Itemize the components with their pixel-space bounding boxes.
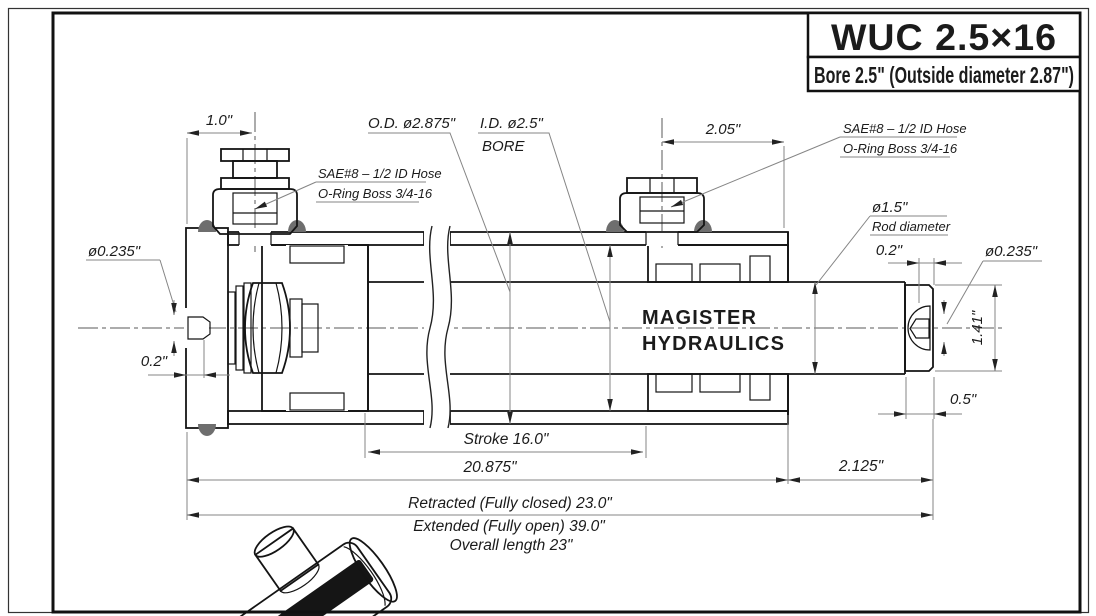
- dim-rod-extension: 2.125": [788, 419, 933, 520]
- dim-retracted: Retracted (Fully closed) 23.0": [187, 495, 933, 515]
- svg-text:ø0.235": ø0.235": [985, 243, 1038, 260]
- svg-text:SAE#8 – 1/2 ID Hose: SAE#8 – 1/2 ID Hose: [843, 121, 967, 136]
- drawing-page: MAGISTER HYDRAULICS 1.0" O.D. ø2.875" I.…: [0, 0, 1096, 616]
- svg-text:2.05": 2.05": [705, 121, 741, 138]
- svg-text:0.5": 0.5": [950, 391, 977, 408]
- svg-text:1.0": 1.0": [206, 112, 233, 129]
- dim-port-spacing: 2.05": [662, 121, 784, 228]
- dim-stroke: Stroke 16.0": [365, 413, 646, 458]
- bore-note: Bore 2.5" (Outside diameter 2.87"): [814, 62, 1074, 88]
- svg-text:Rod diameter: Rod diameter: [872, 219, 951, 234]
- svg-text:Stroke 16.0": Stroke 16.0": [464, 431, 550, 448]
- dim-rod-hole-depth: 0.5": [878, 377, 977, 419]
- svg-text:SAE#8 – 1/2 ID Hose: SAE#8 – 1/2 ID Hose: [318, 166, 442, 181]
- technical-drawing: MAGISTER HYDRAULICS 1.0" O.D. ø2.875" I.…: [0, 0, 1096, 616]
- brand-line1: MAGISTER: [642, 307, 757, 329]
- svg-text:Retracted (Fully closed) 23.0": Retracted (Fully closed) 23.0": [408, 495, 613, 512]
- rod-seal: [656, 264, 692, 282]
- svg-text:ø0.235": ø0.235": [88, 243, 141, 260]
- svg-text:ø1.5": ø1.5": [872, 199, 908, 216]
- title-block: WUC 2.5×16 Bore 2.5" (Outside diameter 2…: [808, 13, 1080, 91]
- svg-text:O-Ring Boss 3/4-16: O-Ring Boss 3/4-16: [318, 186, 433, 201]
- model-number: WUC 2.5×16: [831, 17, 1057, 58]
- svg-text:2.125": 2.125": [838, 458, 885, 475]
- brand-text: MAGISTER HYDRAULICS: [642, 307, 785, 355]
- dim-rod-end-offset: 0.2": [876, 242, 962, 303]
- rod-wiper: [700, 264, 740, 282]
- break-lines: [424, 226, 451, 428]
- svg-text:O.D. ø2.875": O.D. ø2.875": [368, 115, 456, 132]
- dim-rod-hole: ø0.235": [944, 243, 1042, 356]
- svg-text:20.875": 20.875": [463, 459, 518, 476]
- note-sae-left: SAE#8 – 1/2 ID Hose O-Ring Boss 3/4-16: [255, 166, 442, 209]
- svg-text:0.2": 0.2": [141, 353, 168, 370]
- svg-text:0.2": 0.2": [876, 242, 903, 259]
- cylinder-3d-view: [52, 491, 404, 616]
- brand-line2: HYDRAULICS: [642, 333, 785, 355]
- cylinder-section: [184, 149, 933, 436]
- svg-text:I.D. ø2.5": I.D. ø2.5": [480, 115, 544, 132]
- svg-text:BORE: BORE: [482, 138, 526, 155]
- dim-overall: Overall length 23": [450, 537, 574, 554]
- svg-text:1.41": 1.41": [969, 310, 986, 345]
- dim-extended: Extended (Fully open) 39.0": [413, 518, 606, 535]
- svg-text:O-Ring Boss 3/4-16: O-Ring Boss 3/4-16: [843, 141, 958, 156]
- dim-cap-hole: ø0.235": [86, 243, 176, 356]
- dim-id: I.D. ø2.5" BORE: [478, 115, 610, 411]
- dim-port-offset: 1.0": [187, 112, 252, 224]
